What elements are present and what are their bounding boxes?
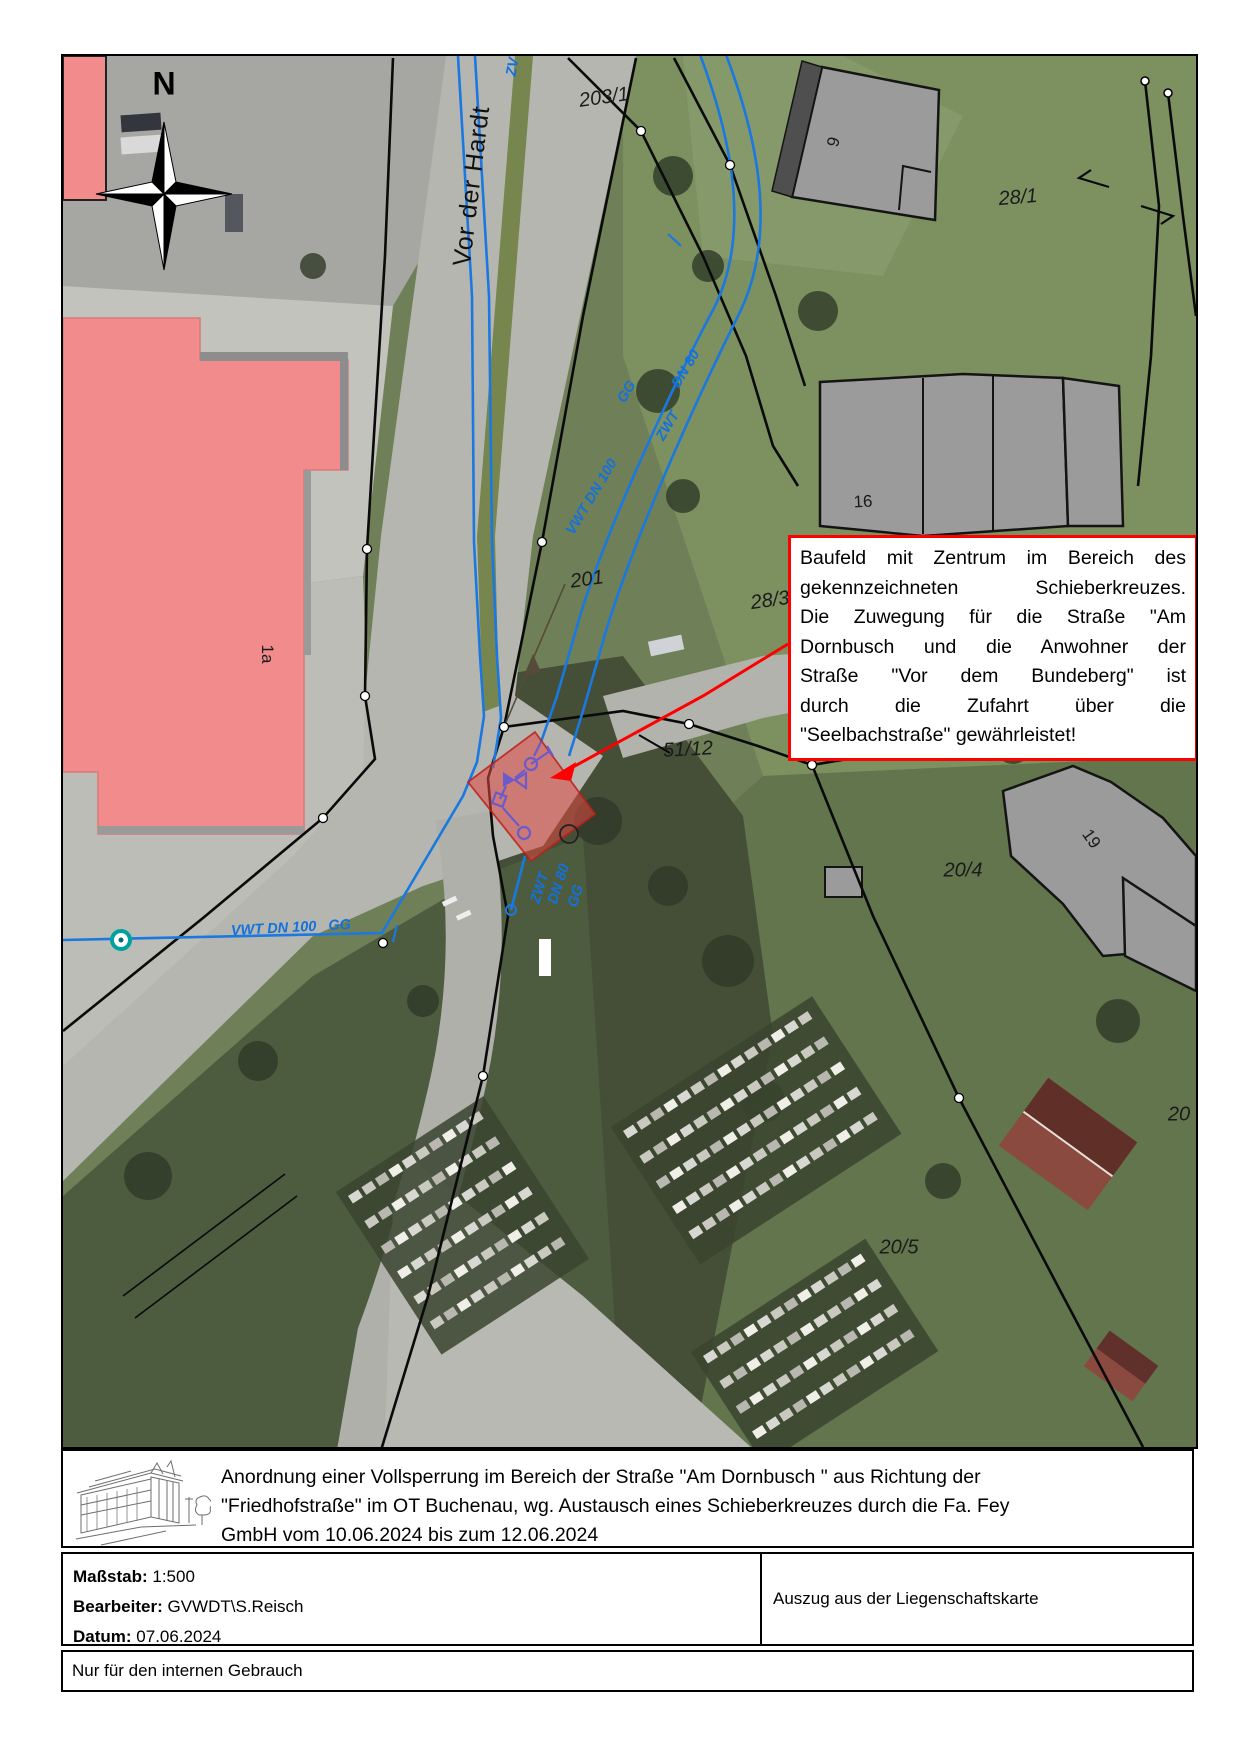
small-shed xyxy=(825,867,862,897)
meta-left-cell: Maßstab: 1:500 Bearbeiter: GVWDT\S.Reisc… xyxy=(73,1562,304,1652)
meta-date-value: 07.06.2024 xyxy=(136,1627,221,1646)
footer-meta-box: Maßstab: 1:500 Bearbeiter: GVWDT\S.Reisc… xyxy=(61,1552,1194,1646)
hydrant-center xyxy=(119,938,124,943)
meta-scale-label: Maßstab: xyxy=(73,1567,148,1586)
meta-scale-row: Maßstab: 1:500 xyxy=(73,1562,304,1592)
meta-date-row: Datum: 07.06.2024 xyxy=(73,1622,304,1652)
meta-editor-row: Bearbeiter: GVWDT\S.Reisch xyxy=(73,1592,304,1622)
meta-editor-value: GVWDT\S.Reisch xyxy=(168,1597,304,1616)
company-logo-sketch xyxy=(71,1453,211,1548)
road-marking-bar xyxy=(539,939,551,976)
building-16 xyxy=(820,374,1068,536)
meta-divider xyxy=(760,1554,762,1644)
meta-date-label: Datum: xyxy=(73,1627,132,1646)
title-line: GmbH vom 10.06.2024 bis zum 12.06.2024 xyxy=(221,1521,1196,1550)
footer-title-box: Anordnung einer Vollsperrung im Bereich … xyxy=(61,1449,1194,1548)
footer-title-text: Anordnung einer Vollsperrung im Bereich … xyxy=(221,1463,1196,1550)
annotation-box: Baufeld mit Zentrum im Bereich desgekenn… xyxy=(788,535,1198,761)
meta-editor-label: Bearbeiter: xyxy=(73,1597,163,1616)
building-16-annex xyxy=(1063,378,1123,526)
annotation-line: Straße "Vor dem Bundeberg" ist xyxy=(800,662,1186,692)
title-line: Anordnung einer Vollsperrung im Bereich … xyxy=(221,1463,1196,1492)
pink-building-small xyxy=(63,56,106,200)
annotation-line: Die Zuwegung für die Straße "Am xyxy=(800,603,1186,633)
annotation-line: durch die Zufahrt über die xyxy=(800,692,1186,722)
annotation-line: Baufeld mit Zentrum im Bereich des xyxy=(800,544,1186,574)
meta-right-cell: Auszug aus der Liegenschaftskarte xyxy=(773,1554,1039,1644)
footer-note-box: Nur für den internen Gebrauch xyxy=(61,1650,1194,1692)
title-line: "Friedhofstraße" im OT Buchenau, wg. Aus… xyxy=(221,1492,1196,1521)
footer-note-text: Nur für den internen Gebrauch xyxy=(72,1661,303,1681)
annotation-line: "Seelbachstraße" gewährleistet! xyxy=(800,721,1186,751)
map-area: 203/128/191628/320151/1251/1820/41920/52… xyxy=(61,54,1198,1449)
north-label: N xyxy=(152,66,175,103)
annotation-line: gekennzeichneten Schieberkreuzes. xyxy=(800,574,1186,604)
document-page: 203/128/191628/320151/1251/1820/41920/52… xyxy=(0,0,1240,1754)
annotation-line: Dornbusch und die Anwohner der xyxy=(800,633,1186,663)
meta-scale-value: 1:500 xyxy=(152,1567,195,1586)
